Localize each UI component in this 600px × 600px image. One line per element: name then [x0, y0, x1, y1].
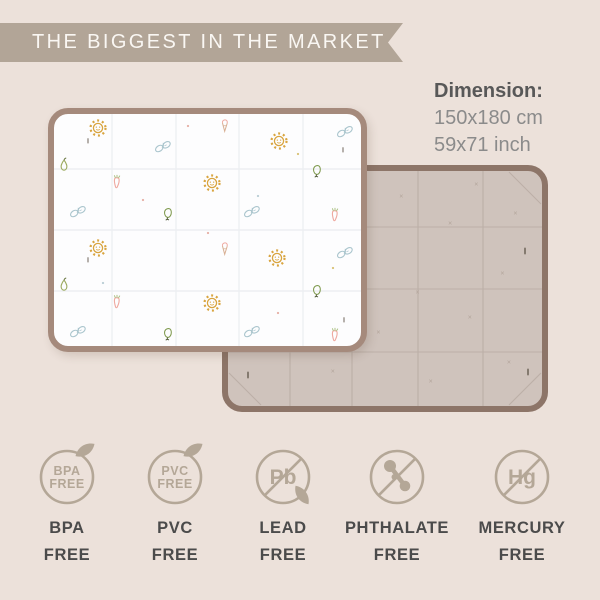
sun-icon: [201, 292, 223, 314]
dash-icon: [339, 146, 348, 155]
carrot-icon: [108, 293, 127, 312]
dash-icon: [84, 256, 93, 265]
front-mat-pattern: [48, 108, 367, 352]
badge-label: BPAFREE: [7, 515, 127, 569]
svg-text:PVC: PVC: [161, 464, 188, 478]
butterfly-icon: [242, 202, 262, 222]
butterfly-icon: [68, 322, 88, 342]
badge-phthalate-free: PHTHALATEFREE: [337, 441, 457, 569]
carrot-icon: [108, 173, 127, 192]
pear-icon: [55, 156, 74, 175]
product-infographic-canvas: THE BIGGEST IN THE MARKET ××××××××××××××…: [0, 0, 600, 600]
butterfly-icon: [153, 137, 173, 157]
balloon-icon: [308, 163, 326, 181]
dimension-imperial-value: 59x71 inch: [434, 132, 543, 159]
dot-icon: [185, 123, 192, 130]
dimension-metric-value: 150x180 cm: [434, 105, 543, 132]
dash-icon: [84, 137, 93, 146]
texture-dash-mark: [527, 369, 529, 376]
butterfly-icon: [335, 122, 355, 142]
svg-text:BPA: BPA: [54, 464, 81, 478]
butterfly-icon: [242, 322, 262, 342]
dimension-title: Dimension:: [434, 78, 543, 105]
balloon-icon: [159, 326, 177, 344]
phthalate-free-icon: [365, 441, 429, 511]
texture-x-mark: ×: [429, 379, 433, 386]
badge-mercury-free: HgMERCURYFREE: [462, 441, 582, 569]
dot-icon: [255, 193, 262, 200]
pvc-free-icon: PVCFREE: [143, 441, 207, 511]
texture-dash-mark: [247, 371, 249, 378]
sun-icon: [201, 172, 223, 194]
texture-x-mark: ×: [500, 270, 504, 277]
badge-label: PHTHALATEFREE: [337, 515, 457, 569]
dot-icon: [100, 280, 107, 287]
balloon-icon: [159, 206, 177, 224]
banner-ribbon: THE BIGGEST IN THE MARKET: [0, 23, 403, 62]
carrot-icon: [326, 206, 345, 225]
badge-label: MERCURYFREE: [462, 515, 582, 569]
dot-icon: [330, 265, 337, 272]
carrot-icon: [326, 326, 345, 345]
svg-text:FREE: FREE: [157, 477, 192, 491]
texture-x-mark: ×: [468, 315, 472, 322]
dot-icon: [295, 151, 302, 158]
lead-free-icon: Pb: [251, 441, 315, 511]
play-mat-front-side: [48, 108, 367, 352]
butterfly-icon: [68, 202, 88, 222]
badge-bpa-free: BPAFREEBPAFREE: [7, 441, 127, 569]
cone-icon: [216, 239, 235, 258]
dot-icon: [275, 310, 282, 317]
texture-x-mark: ×: [507, 359, 511, 366]
banner-title: THE BIGGEST IN THE MARKET: [0, 23, 403, 62]
dimension-info: Dimension: 150x180 cm 59x71 inch: [434, 78, 543, 159]
badge-label: PVCFREE: [115, 515, 235, 569]
mercury-free-icon: Hg: [490, 441, 554, 511]
dot-icon: [205, 230, 212, 237]
texture-x-mark: ×: [513, 211, 517, 218]
badge-lead-free: PbLEADFREE: [223, 441, 343, 569]
badge-label: LEADFREE: [223, 515, 343, 569]
texture-x-mark: ×: [474, 181, 478, 188]
texture-dash-mark: [524, 248, 526, 255]
sun-icon: [266, 247, 288, 269]
texture-x-mark: ×: [331, 369, 335, 376]
balloon-icon: [308, 283, 326, 301]
texture-x-mark: ×: [416, 290, 420, 297]
cone-icon: [216, 116, 235, 135]
dot-icon: [140, 197, 147, 204]
butterfly-icon: [335, 243, 355, 263]
badge-pvc-free: PVCFREEPVCFREE: [115, 441, 235, 569]
svg-text:FREE: FREE: [49, 477, 84, 491]
texture-x-mark: ×: [399, 194, 403, 201]
pear-icon: [55, 276, 74, 295]
texture-x-mark: ×: [376, 329, 380, 336]
certification-badges: BPAFREEBPAFREEPVCFREEPVCFREEPbLEADFREEPH…: [0, 441, 600, 581]
dash-icon: [340, 316, 349, 325]
texture-x-mark: ×: [448, 221, 452, 228]
sun-icon: [268, 130, 290, 152]
bpa-free-icon: BPAFREE: [35, 441, 99, 511]
